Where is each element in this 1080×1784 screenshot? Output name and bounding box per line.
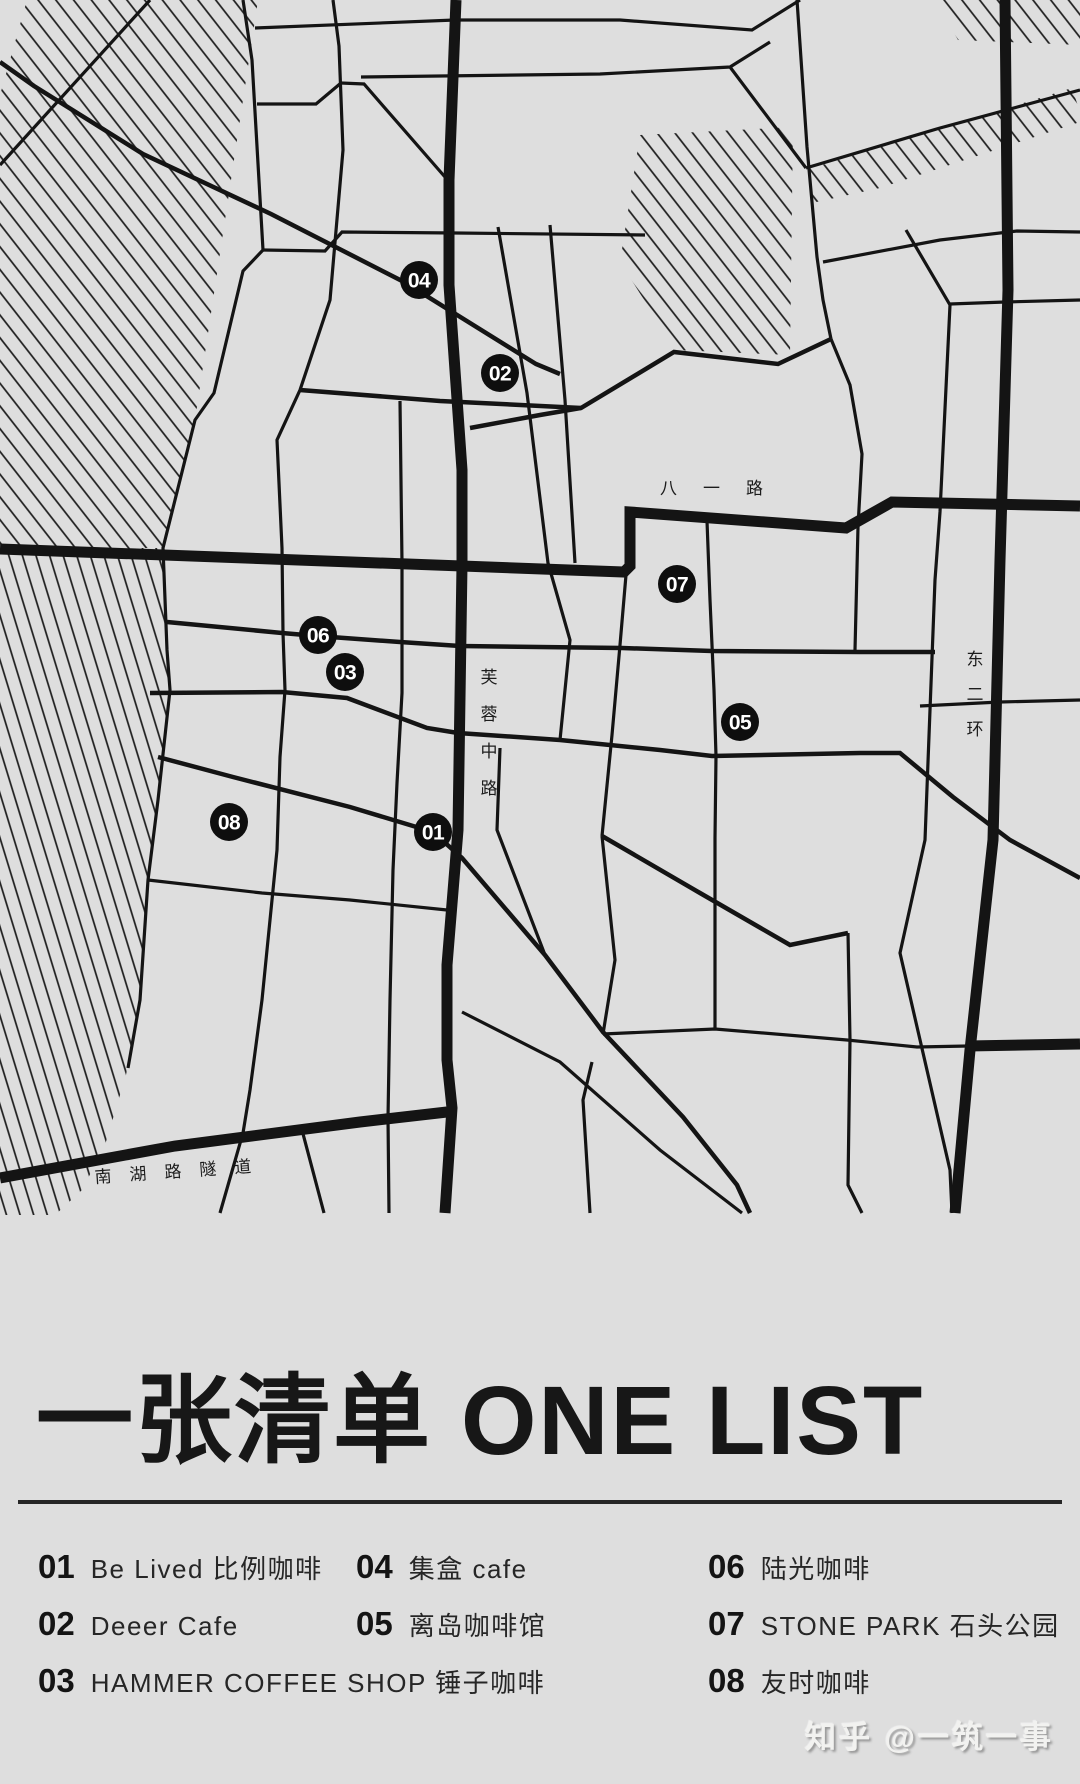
road-34: [603, 1029, 968, 1047]
list-item-name-06: 陆光咖啡: [761, 1549, 871, 1586]
road-8: [602, 836, 848, 945]
poster: 八一路南湖路隧道芙蓉中路东二环 0102030405060708 一张清单 ON…: [0, 0, 1080, 1784]
list-item-name-01: Be Lived 比例咖啡: [91, 1549, 323, 1586]
map-marker-03: 03: [326, 653, 364, 691]
list-item-07: 07STONE PARK 石头公园: [708, 1605, 1060, 1662]
road-30: [831, 339, 862, 650]
list-item-number-03: 03: [38, 1662, 75, 1700]
list-item-number-06: 06: [708, 1548, 745, 1586]
page-title: 一张清单 ONE LIST: [36, 1368, 1046, 1473]
road-23: [900, 230, 952, 1213]
hatch-area-1: [0, 0, 258, 548]
list-item-number-04: 04: [356, 1548, 393, 1586]
list-item-number-02: 02: [38, 1605, 75, 1643]
road-21: [823, 231, 1080, 262]
list-item-name-08: 友时咖啡: [761, 1663, 871, 1700]
hatch-area-5: [620, 127, 793, 355]
road-28: [341, 83, 445, 177]
road-36: [462, 1012, 742, 1213]
road-18: [361, 42, 770, 77]
road-40: [388, 401, 402, 1213]
map-marker-05: 05: [721, 703, 759, 741]
hatch-area-2: [0, 548, 170, 1215]
road-24: [950, 300, 1080, 304]
road-25: [498, 227, 570, 740]
list-item-number-08: 08: [708, 1662, 745, 1700]
road-35: [848, 933, 862, 1213]
watermark: 知乎 @一筑一事: [805, 1712, 1054, 1757]
road-33: [602, 836, 615, 1034]
list-item-number-05: 05: [356, 1605, 393, 1643]
map-marker-label-03: 03: [334, 662, 356, 685]
road-1: [445, 0, 462, 1213]
list-item-04: 04集盒 cafe: [356, 1548, 546, 1605]
map-marker-label-07: 07: [666, 574, 688, 597]
list-item-05: 05离岛咖啡馆: [356, 1605, 546, 1662]
list-item-number-01: 01: [38, 1548, 75, 1586]
road-3: [955, 0, 1008, 1213]
city-map: 八一路南湖路隧道芙蓉中路东二环 0102030405060708: [0, 0, 1080, 1216]
road-26: [550, 225, 575, 563]
map-marker-label-01: 01: [422, 822, 445, 845]
map-marker-08: 08: [210, 803, 248, 841]
east-2nd-ring-label: 东二环: [967, 650, 984, 739]
list-item-03: 03HAMMER COFFEE SHOP 锤子咖啡: [38, 1662, 545, 1719]
list-item-name-07: STONE PARK 石头公园: [761, 1606, 1060, 1643]
map-marker-label-08: 08: [218, 812, 241, 835]
road-31: [707, 521, 716, 1029]
map-marker-01: 01: [414, 813, 452, 851]
map-marker-label-02: 02: [489, 363, 511, 386]
road-10: [158, 757, 433, 832]
list-item-name-03: HAMMER COFFEE SHOP 锤子咖啡: [91, 1663, 545, 1700]
road-5: [968, 1044, 1080, 1046]
map-marker-06: 06: [299, 616, 337, 654]
road-32: [602, 575, 626, 836]
map-marker-02: 02: [481, 354, 519, 392]
list-item-08: 08友时咖啡: [708, 1662, 1060, 1719]
list-column-2: 04集盒 cafe05离岛咖啡馆: [356, 1548, 546, 1662]
list-item-name-05: 离岛咖啡馆: [409, 1606, 547, 1643]
road-38: [148, 880, 447, 910]
road-13: [300, 390, 581, 408]
hatch-area-4: [806, 88, 1080, 203]
list-item-06: 06陆光咖啡: [708, 1548, 1060, 1605]
road-39: [302, 1130, 324, 1213]
map-marker-04: 04: [400, 261, 438, 299]
map-marker-label-04: 04: [408, 270, 431, 293]
road-17: [220, 0, 343, 1213]
map-marker-07: 07: [658, 565, 696, 603]
title-divider: [18, 1500, 1062, 1504]
map-marker-label-05: 05: [729, 712, 752, 735]
list-item-name-04: 集盒 cafe: [409, 1549, 528, 1586]
list-item-number-07: 07: [708, 1605, 745, 1643]
list-item-name-02: Deeer Cafe: [91, 1611, 239, 1642]
road-9: [150, 692, 1080, 878]
location-list: 01Be Lived 比例咖啡02Deeer Cafe03HAMMER COFF…: [0, 1548, 1080, 1738]
list-column-3: 06陆光咖啡07STONE PARK 石头公园08友时咖啡: [708, 1548, 1060, 1719]
bayi-road-label: 八一路: [660, 479, 789, 498]
map-marker-label-06: 06: [307, 625, 329, 648]
road-27: [257, 83, 341, 104]
